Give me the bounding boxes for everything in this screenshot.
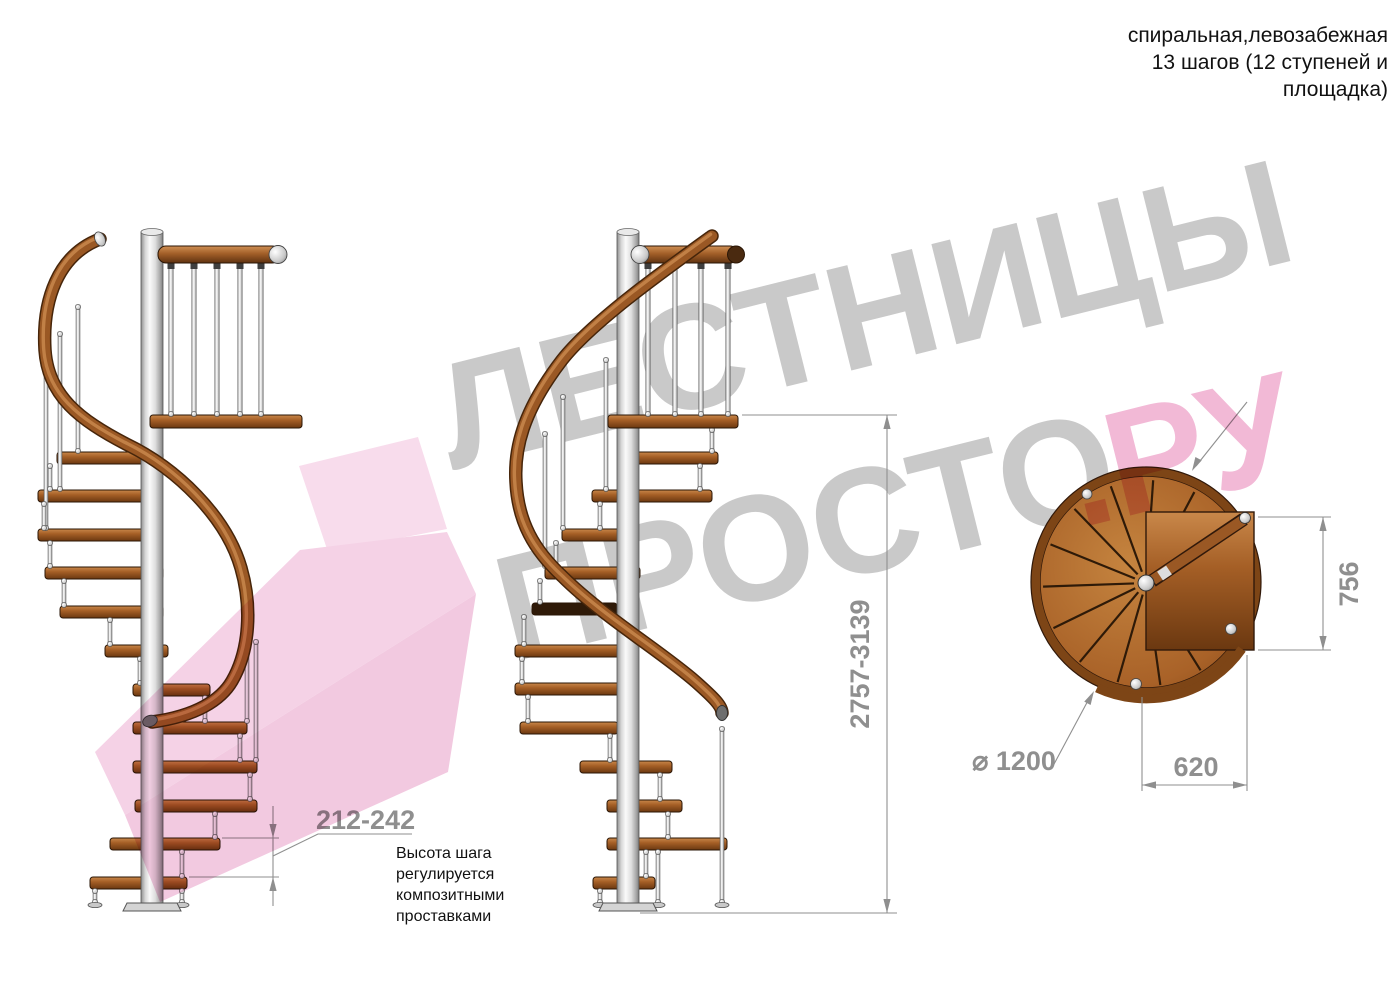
drawing-page: ЛЕСТНИЦЫ ПРОСТО (0, 0, 1400, 1000)
watermark-word-3: .РУ (1047, 339, 1315, 559)
watermark-pink-layer: .РУ (0, 0, 1400, 1000)
watermark-arrow-shape (95, 437, 476, 902)
